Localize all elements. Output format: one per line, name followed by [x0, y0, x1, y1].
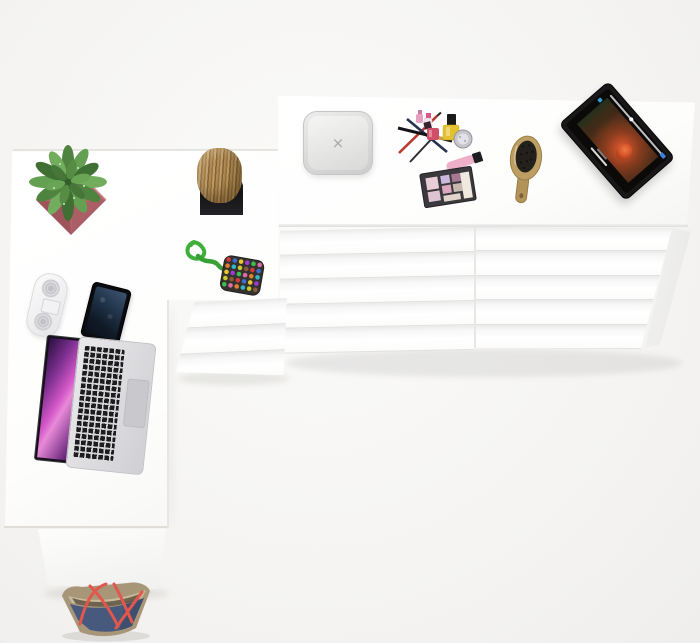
- progress-knob: [628, 116, 634, 122]
- chest-drawers-right-column: [476, 227, 672, 349]
- desk-bottom-edge: [4, 526, 168, 528]
- charger-x-mark: ×: [332, 136, 345, 151]
- beaded-keychain: [184, 236, 268, 298]
- drawer-front: [280, 227, 474, 255]
- desk-inner-edge: [167, 300, 169, 528]
- player-icon-right: [659, 152, 666, 159]
- log-stool-wood: [197, 148, 242, 203]
- wireless-charger: ×: [303, 111, 373, 175]
- drawer-front: [280, 325, 474, 353]
- speaker-grille-top: [40, 278, 62, 300]
- chest-floor-shadow: [286, 349, 682, 377]
- drawer-front: [280, 276, 474, 304]
- bead-pouch: [219, 255, 264, 296]
- drawer-front: [476, 276, 672, 300]
- side-drawer-unit: [176, 298, 288, 376]
- tote-bag: [56, 578, 156, 643]
- laptop-deck: [65, 336, 156, 475]
- product-render-scene: ×: [0, 0, 700, 643]
- drawer-front: [476, 300, 672, 324]
- phone-screen: [85, 286, 128, 340]
- makeup-set: [394, 106, 506, 210]
- drawer-front: [476, 251, 672, 275]
- hairbrush: [500, 133, 550, 207]
- laptop-trackpad: [123, 378, 150, 428]
- charger-surface: ×: [308, 116, 368, 170]
- chest-drawers-left-column: [280, 227, 474, 354]
- laptop-keyboard: [73, 346, 124, 462]
- chest-column-seam: [474, 227, 476, 348]
- potted-plant: [24, 142, 120, 242]
- drawer-front: [476, 227, 672, 251]
- drawer-front: [280, 301, 474, 329]
- eyeshadow-palette: [420, 166, 477, 208]
- drawer-front: [476, 325, 672, 349]
- drawer-front: [280, 252, 474, 280]
- chest-front-edge: [279, 224, 688, 227]
- glitter-jar: [454, 130, 472, 148]
- laptop: [33, 333, 156, 476]
